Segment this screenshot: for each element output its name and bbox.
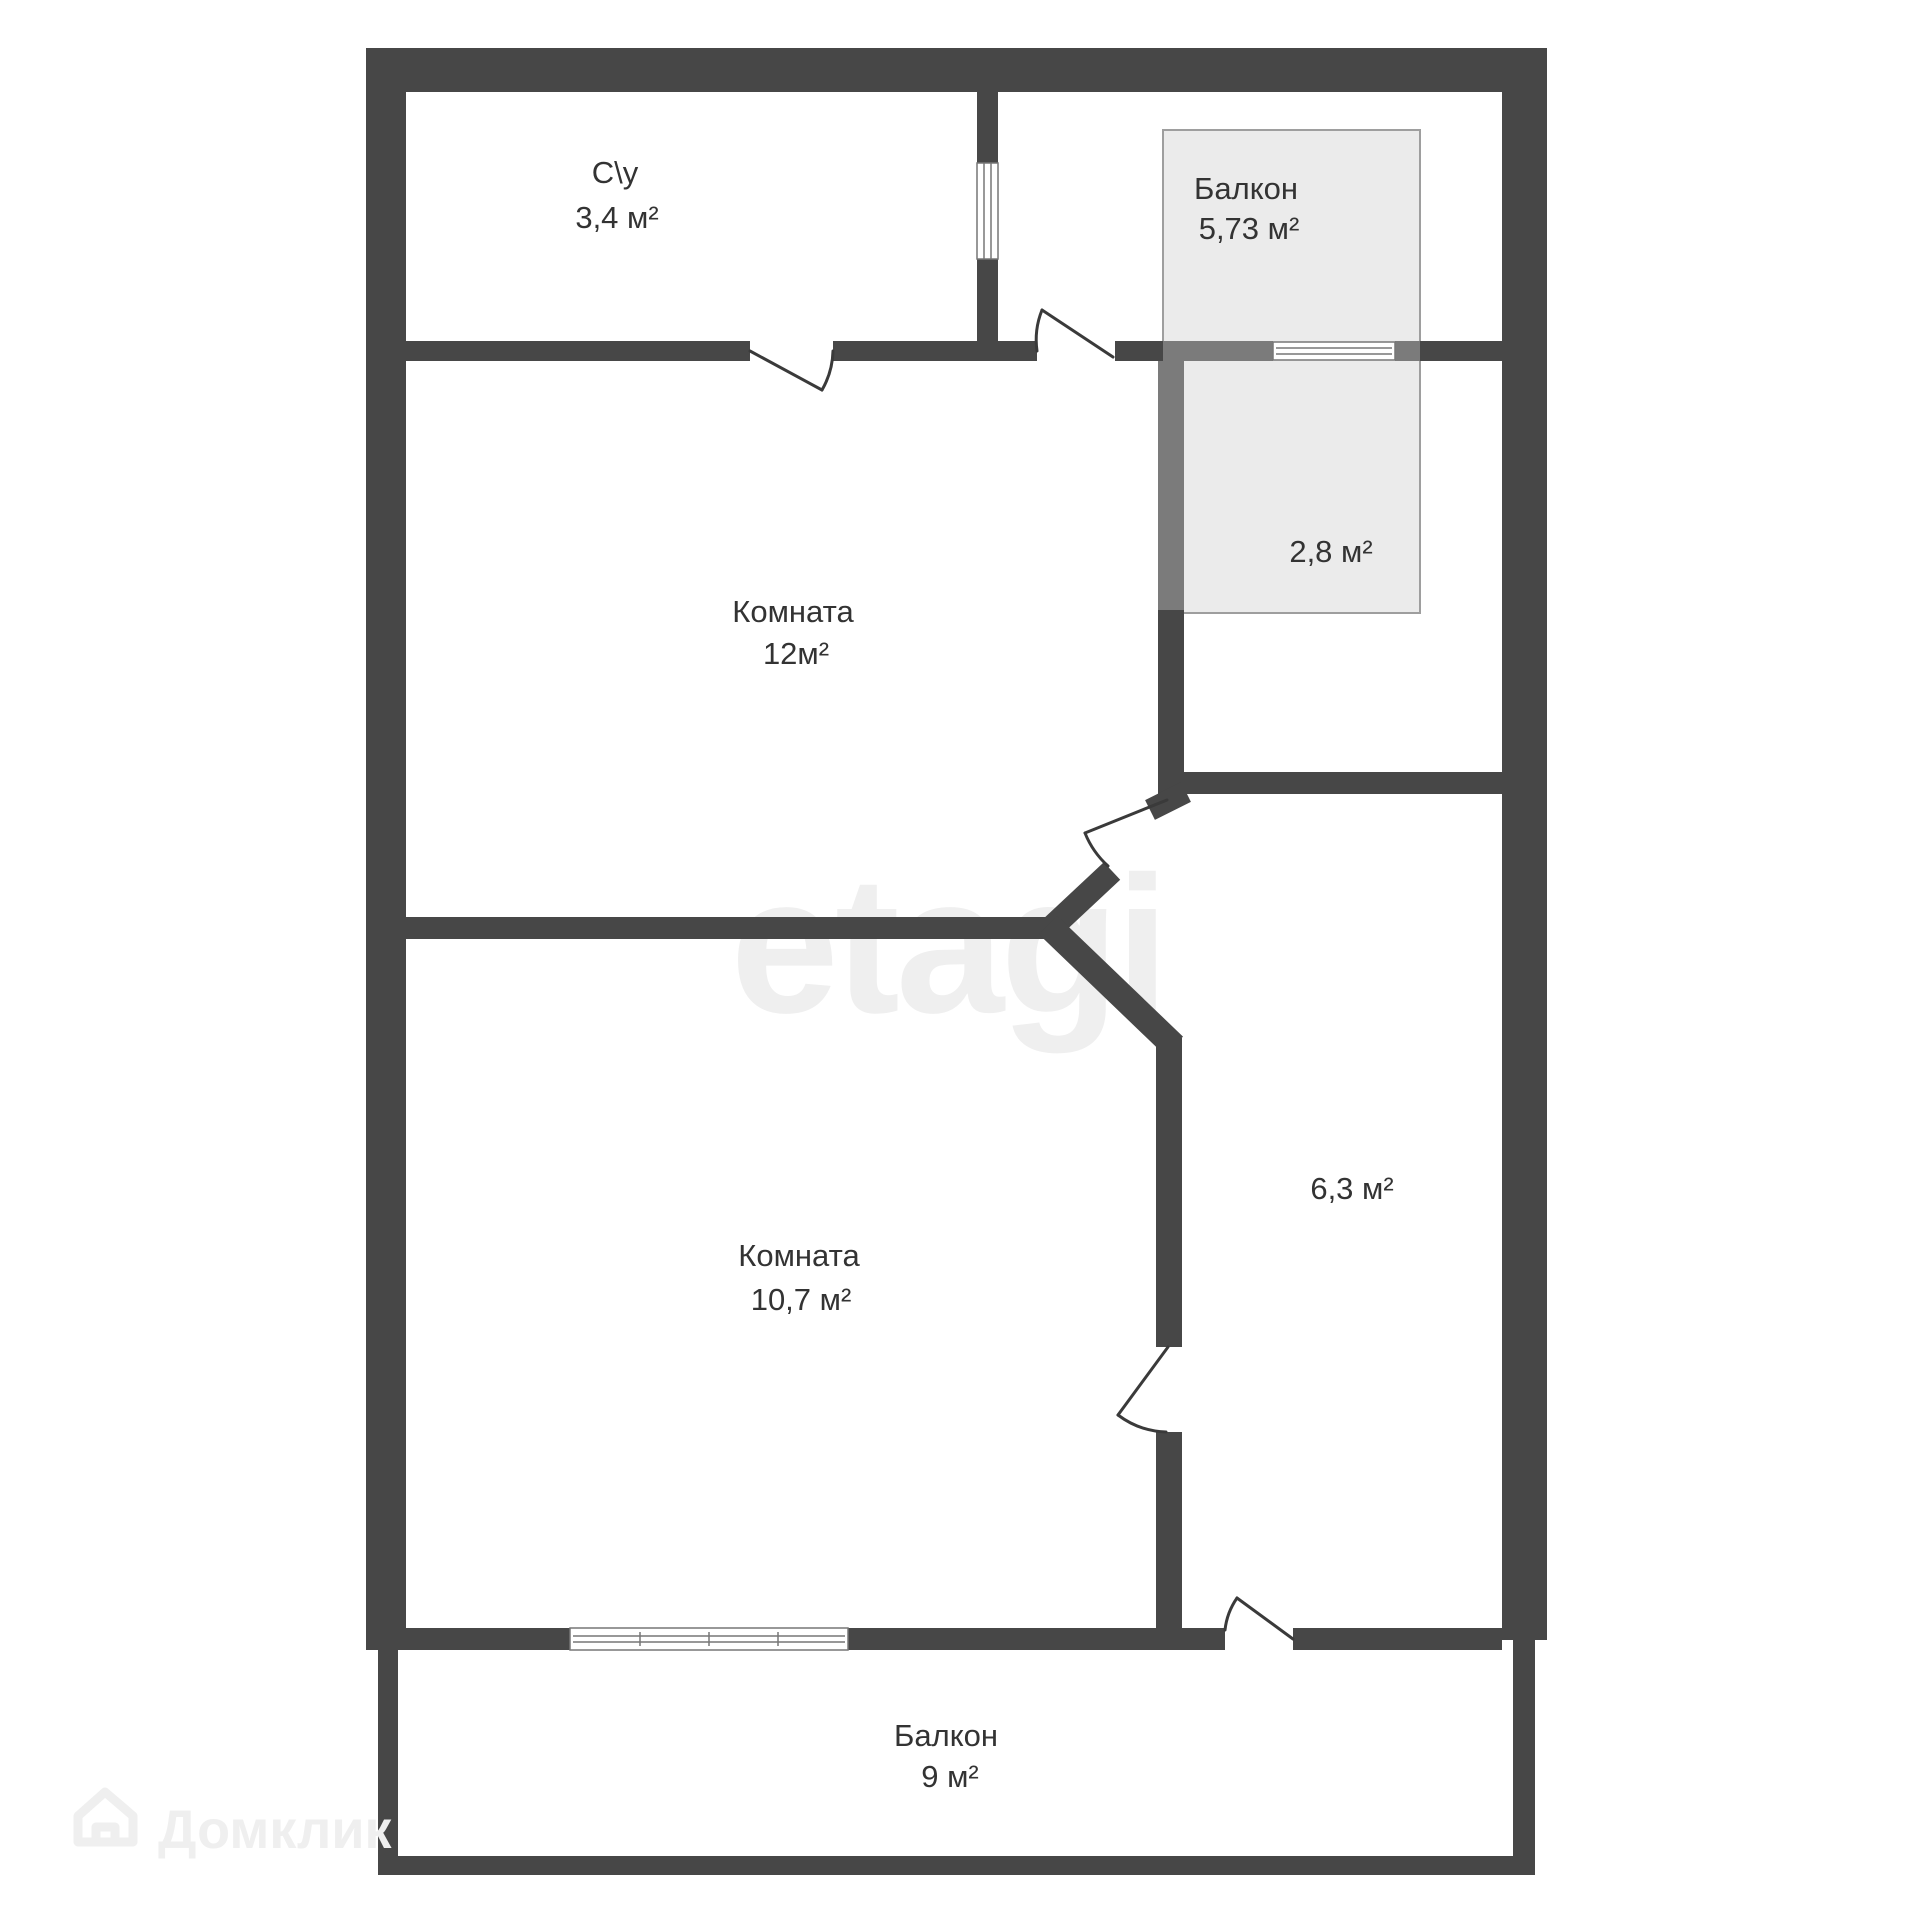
room-area-room107: 10,7 м² xyxy=(751,1282,852,1317)
su-door-arc xyxy=(822,351,833,390)
balcony9-wall-right xyxy=(1513,1640,1535,1875)
balcony-door-leaf xyxy=(1042,310,1113,357)
outer-wall-right xyxy=(1502,92,1547,1640)
su-door-leaf xyxy=(750,351,822,390)
balcony9-wall-bottom xyxy=(378,1856,1535,1875)
niche-wall-lower xyxy=(1158,610,1184,795)
room-area-room12: 12м² xyxy=(763,636,829,671)
room-area-niche: 2,8 м² xyxy=(1289,534,1372,569)
room107-right-wall-lower xyxy=(1156,1432,1182,1628)
partition-top-seg2 xyxy=(833,341,1037,361)
outer-wall-bottom-seg3 xyxy=(1293,1628,1502,1650)
room-area-su: 3,4 м² xyxy=(575,200,658,235)
floor-plan-drawing: etagi xyxy=(0,0,1920,1920)
balcony-door-arc xyxy=(1036,310,1042,351)
room-label-room12: Комната xyxy=(732,594,854,629)
room-label-balcony9: Балкон xyxy=(894,1718,998,1753)
su-wall-upper xyxy=(977,92,998,163)
outer-wall-top xyxy=(366,48,1547,92)
room-label-su: С\у xyxy=(592,155,639,190)
su-wall-lower xyxy=(977,259,998,341)
room-label-room107: Комната xyxy=(738,1238,860,1273)
hall-top-wall xyxy=(1184,772,1502,794)
rooms-divider-wall xyxy=(406,917,1058,939)
balcony9-door-leaf xyxy=(1237,1598,1293,1639)
room107-door-arc xyxy=(1118,1415,1166,1432)
partition-top-seg4 xyxy=(1420,341,1502,361)
floor-plan-page: etagi xyxy=(0,0,1920,1920)
niche-wall-over-balcony xyxy=(1158,361,1184,610)
logo-text: Домклик xyxy=(158,1800,393,1860)
room107-right-wall-upper xyxy=(1156,1038,1182,1347)
room-area-hall: 6,3 м² xyxy=(1310,1171,1393,1206)
balcony-window xyxy=(1273,342,1395,360)
house-icon xyxy=(78,1792,133,1842)
room-label-balcony-top: Балкон xyxy=(1194,171,1298,206)
balcony9-door-arc xyxy=(1225,1598,1237,1630)
room107-door-leaf xyxy=(1118,1347,1168,1415)
outer-wall-left xyxy=(366,48,406,1650)
partition-top-seg1 xyxy=(406,341,750,361)
domklik-logo: Домклик xyxy=(78,1792,393,1860)
su-transom-window xyxy=(977,163,998,259)
room-area-balcony-top: 5,73 м² xyxy=(1199,211,1300,246)
partition-top-seg3 xyxy=(1115,341,1163,361)
outer-wall-bottom-seg2 xyxy=(848,1628,1225,1650)
partition-top-over-balcony-left xyxy=(1163,341,1273,361)
room-area-balcony9: 9 м² xyxy=(921,1759,979,1794)
partition-top-over-balcony-right xyxy=(1395,341,1420,361)
